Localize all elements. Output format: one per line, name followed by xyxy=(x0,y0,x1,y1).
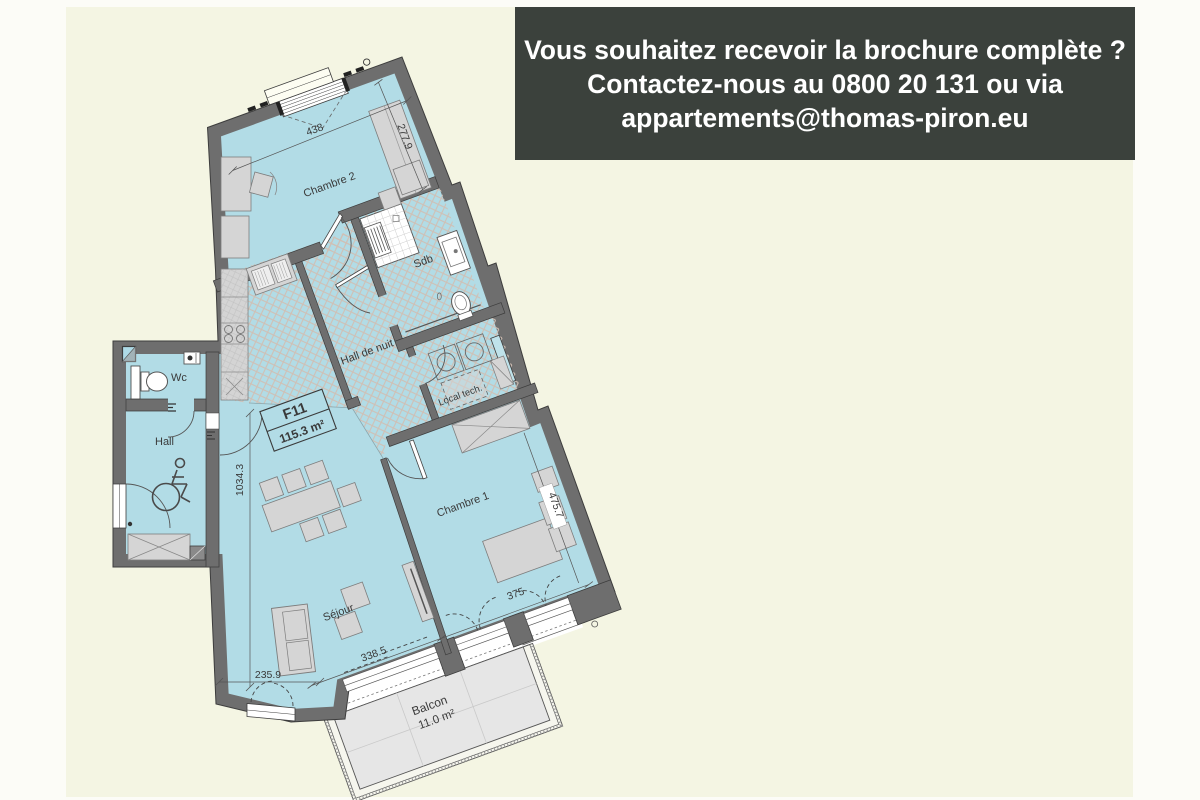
svg-text:Hall: Hall xyxy=(155,436,174,448)
svg-text:235.9: 235.9 xyxy=(255,669,281,681)
svg-text:1034.3: 1034.3 xyxy=(234,464,246,496)
svg-text:Wc: Wc xyxy=(171,372,187,384)
